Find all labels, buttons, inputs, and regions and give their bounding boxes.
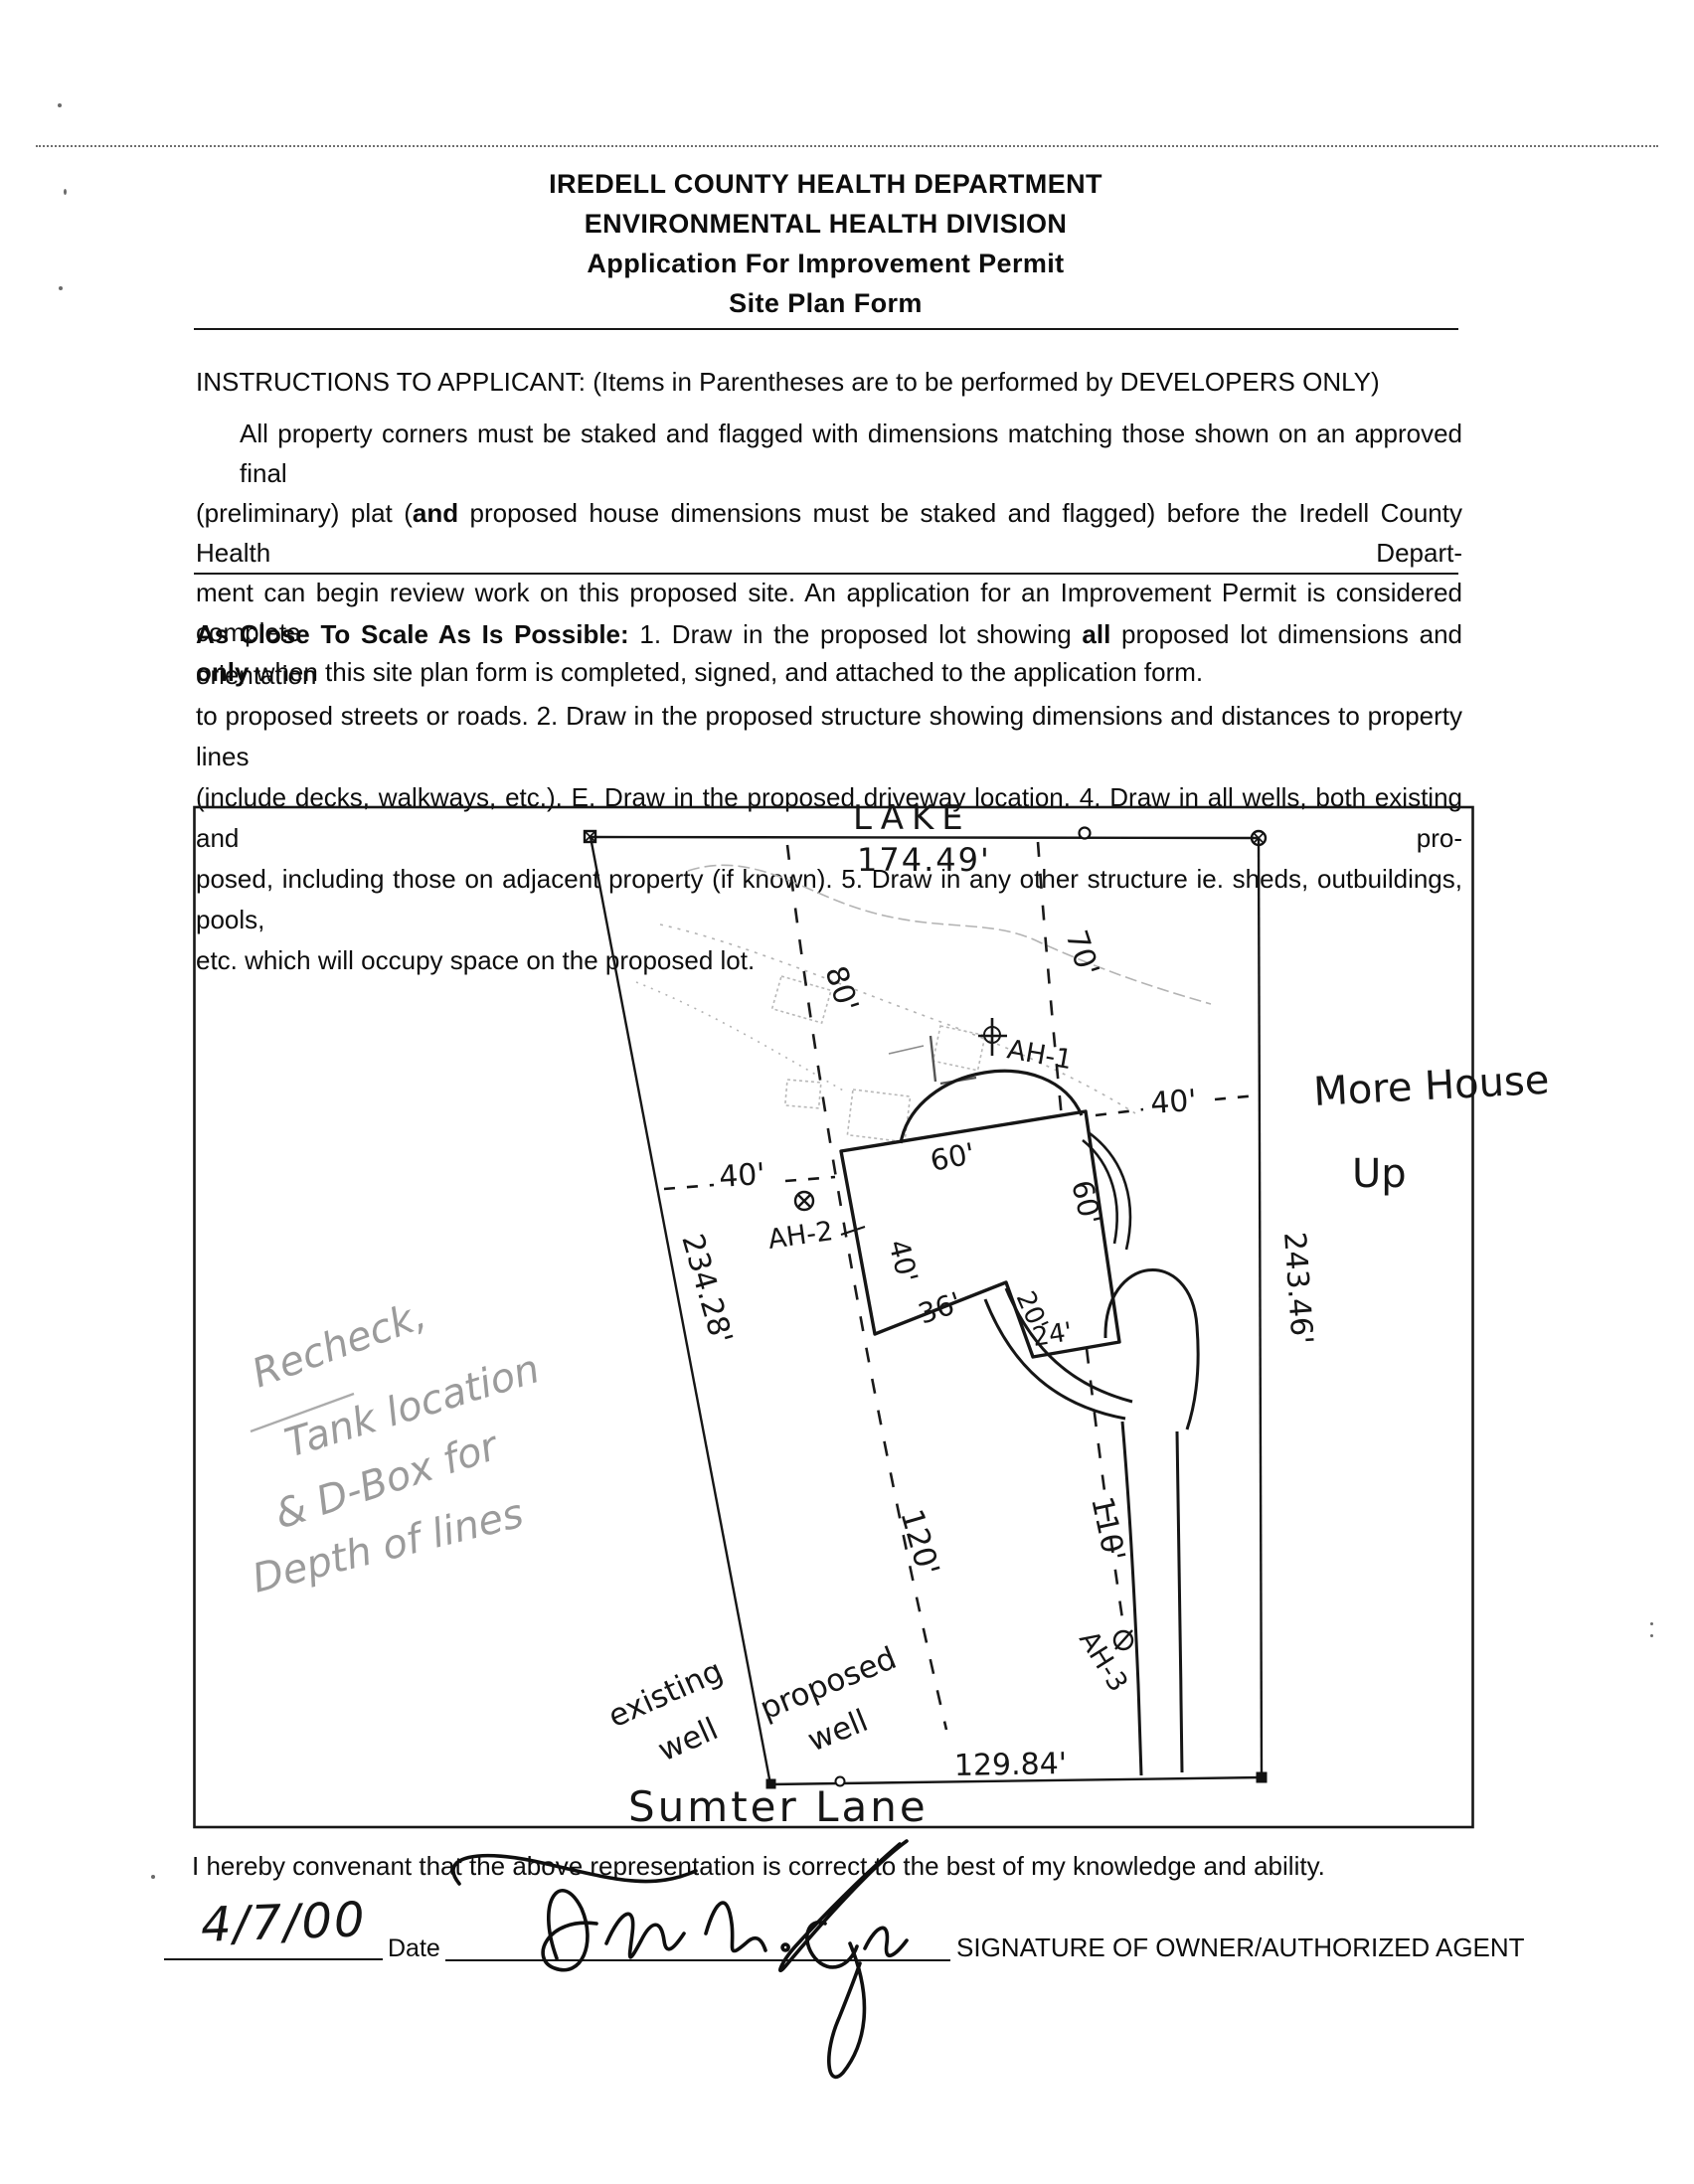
- stake-bottom-right: [1257, 1772, 1267, 1782]
- scan-speck: [1650, 1634, 1653, 1637]
- proposed-well-label-2: well: [803, 1703, 874, 1759]
- lake-label: LAKE: [853, 798, 971, 838]
- setback-120-label: 120': [893, 1505, 945, 1580]
- note-more-house-line1: More House: [1312, 1058, 1550, 1115]
- bottom-dimension-label: 129.84': [954, 1747, 1068, 1783]
- well-offset-40-label: 40': [718, 1157, 766, 1195]
- horizontal-rule-top: [194, 328, 1458, 330]
- ah1-label: AH-1: [1005, 1034, 1075, 1076]
- house-offset-40-label: 40': [1149, 1084, 1198, 1121]
- horizontal-rule-middle: [194, 573, 1458, 575]
- ah2-label: AH-2: [766, 1216, 835, 1256]
- pencil-note: Recheck, Tank location & D-Box for Depth…: [247, 1292, 545, 1602]
- instructions-heading: INSTRUCTIONS TO APPLICANT: (Items in Par…: [196, 362, 1478, 402]
- site-plan-drawing: LAKE 174.49' 234.28' 243.46' 129.84' 80'…: [193, 785, 1605, 1841]
- scale-text: 1. Draw in the proposed lot showing: [629, 619, 1083, 649]
- header-application-title: Application For Improvement Permit: [193, 249, 1458, 279]
- scan-artifact-line: [36, 145, 1658, 147]
- scan-speck: [58, 103, 62, 107]
- form-header: IREDELL COUNTY HEALTH DEPARTMENT ENVIRON…: [193, 169, 1458, 319]
- scan-speck: [1650, 1622, 1653, 1625]
- pencil-note-line1: Recheck,: [247, 1292, 432, 1398]
- right-dimension-label: 243.46': [1276, 1231, 1319, 1345]
- existing-well-label-2: well: [653, 1711, 724, 1768]
- signature-label: SIGNATURE OF OWNER/AUTHORIZED AGENT: [956, 1932, 1525, 1963]
- instructions-text: (preliminary) plat (: [196, 498, 413, 528]
- contour-sketch-lines: [636, 865, 1211, 1113]
- header-form-title: Site Plan Form: [193, 288, 1458, 319]
- scale-text-bold: As Close To Scale As Is Possible:: [196, 619, 629, 649]
- scan-speck: [64, 189, 67, 195]
- header-division: ENVIRONMENTAL HEALTH DIVISION: [193, 209, 1458, 240]
- scale-text: to proposed streets or roads. 2. Draw in…: [196, 701, 1462, 771]
- scale-line-1: As Close To Scale As Is Possible: 1. Dra…: [196, 614, 1462, 696]
- scale-line-2: to proposed streets or roads. 2. Draw in…: [196, 696, 1462, 777]
- scan-speck: [151, 1875, 155, 1879]
- scan-speck: [59, 286, 63, 290]
- property-line-right: [1259, 838, 1262, 1777]
- instructions-line-2: (preliminary) plat (and proposed house d…: [196, 493, 1462, 573]
- date-line: [164, 1958, 383, 1960]
- setback-110-label: 110': [1084, 1493, 1131, 1564]
- instructions-line-1: All property corners must be staked and …: [196, 414, 1462, 493]
- marker-symbol-ah3: [1114, 1630, 1132, 1649]
- proposed-house-outline: [841, 1111, 1119, 1357]
- handwritten-date: 4/7/00: [200, 1892, 367, 1953]
- note-more-house-line2: Up: [1352, 1151, 1407, 1197]
- instructions-text: All property corners must be staked and …: [240, 419, 1462, 488]
- faint-sketched-structures: [772, 976, 985, 1142]
- ah3-label: AH-3: [1073, 1625, 1133, 1697]
- property-line-left: [591, 837, 770, 1784]
- house-wing-24-label: 24': [1030, 1317, 1074, 1353]
- signature-script: [398, 1829, 1014, 2098]
- scale-text-bold: all: [1082, 619, 1110, 649]
- header-department: IREDELL COUNTY HEALTH DEPARTMENT: [193, 169, 1458, 200]
- setback-70-label: 70': [1058, 926, 1105, 981]
- scanned-site-plan-form: { "header": { "dept": "IREDELL COUNTY HE…: [0, 0, 1694, 2184]
- proposed-well-label-1: proposed: [756, 1640, 902, 1727]
- instructions-text-bold: and: [413, 498, 458, 528]
- setback-80-label: 80': [817, 962, 865, 1017]
- marker-circle-top: [1080, 828, 1091, 839]
- road-label: Sumter Lane: [628, 1782, 929, 1831]
- top-dimension-label: 174.49': [857, 841, 991, 879]
